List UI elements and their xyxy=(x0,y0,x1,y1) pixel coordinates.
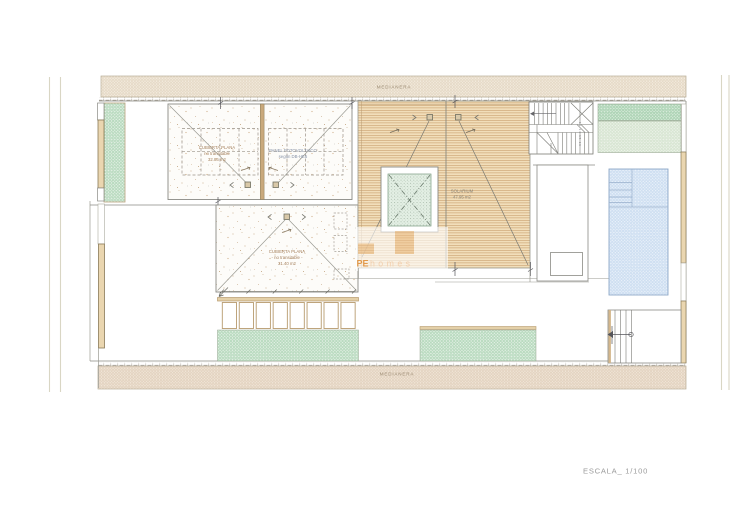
svg-text:31.40 m2: 31.40 m2 xyxy=(278,261,297,266)
svg-text:13 14 15 16: 13 14 15 16 xyxy=(578,122,582,147)
svg-text:32.86 m2: 32.86 m2 xyxy=(208,157,227,162)
svg-text:SOLARIUM: SOLARIUM xyxy=(451,189,474,194)
svg-text:PE: PE xyxy=(357,259,369,269)
svg-text:ESCALA_ 1/100: ESCALA_ 1/100 xyxy=(583,467,648,476)
svg-text:MEDIANERA: MEDIANERA xyxy=(380,372,415,377)
svg-text:no transitable: no transitable xyxy=(204,151,230,156)
svg-text:CUBIERTA PLANA: CUBIERTA PLANA xyxy=(199,145,236,150)
svg-text:MEDIANERA: MEDIANERA xyxy=(377,85,412,90)
svg-text:homes: homes xyxy=(370,259,413,269)
svg-text:PANEL FOTOVOLTAICO: PANEL FOTOVOLTAICO xyxy=(269,148,317,153)
svg-text:- no transitable -: - no transitable - xyxy=(271,255,303,260)
svg-text:47.95 m2: 47.95 m2 xyxy=(453,195,472,200)
svg-text:CUBIERTA PLANA: CUBIERTA PLANA xyxy=(269,249,306,254)
svg-text:según DB-HE5: según DB-HE5 xyxy=(279,154,308,159)
